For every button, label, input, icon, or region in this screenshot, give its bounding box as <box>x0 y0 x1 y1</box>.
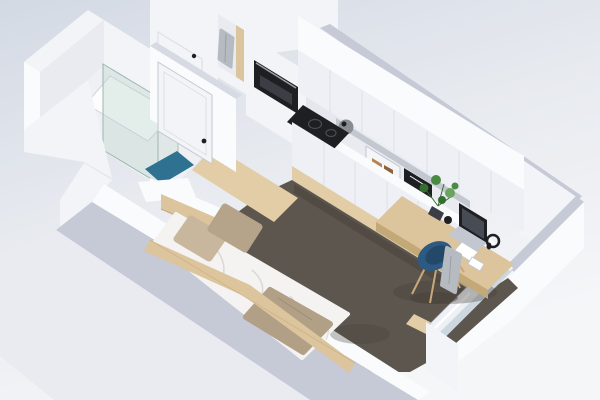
plant-leaves <box>452 183 459 190</box>
door-handle <box>202 139 207 144</box>
kettle-lid <box>342 122 347 127</box>
plant-leaves <box>438 196 446 204</box>
chair-shadow <box>410 292 458 304</box>
plant-leaves <box>431 175 441 185</box>
wardrobe-niche-wood-back <box>236 25 244 82</box>
mug <box>444 216 452 224</box>
headphones-earpad <box>487 243 492 250</box>
entry-door-handle <box>192 54 196 58</box>
towel-on-chair <box>442 248 460 292</box>
bed-shadow <box>330 324 390 344</box>
plant-leaves <box>420 184 429 193</box>
plant-leaves <box>445 188 455 198</box>
apartment-3d-render <box>0 0 600 400</box>
render-canvas <box>0 0 600 400</box>
